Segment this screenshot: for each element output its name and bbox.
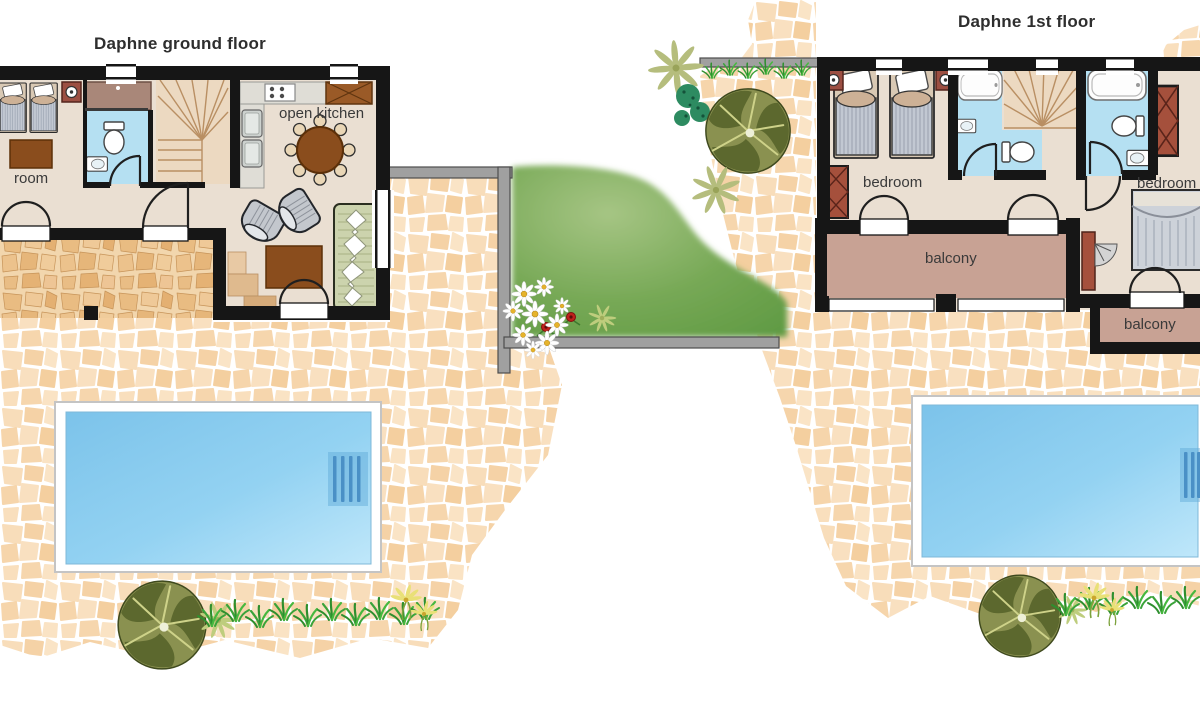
toilet-symbol [1112, 116, 1144, 136]
gf-toilet-symbol [104, 122, 124, 154]
sink-symbol [1127, 150, 1149, 165]
sink-symbol [956, 119, 976, 133]
ff-bathroom-2 [1086, 68, 1149, 176]
pool-ladder-icon [1180, 448, 1200, 502]
pool-water [922, 405, 1198, 557]
first-floor-title: Daphne 1st floor [958, 12, 1095, 32]
dining-table-symbol [285, 115, 355, 185]
stove-symbol [265, 84, 295, 101]
ground-floor-pool [55, 402, 381, 572]
label-bedroom-left: bedroom [863, 174, 922, 191]
desk-symbol [10, 140, 52, 168]
inner-courtyard-stone [0, 240, 214, 318]
shrub-icon [642, 34, 711, 103]
sofa-symbol [334, 204, 378, 310]
double-bed-symbol [1132, 190, 1200, 270]
label-balcony-main: balcony [925, 250, 977, 267]
gf-sink-symbol [87, 157, 108, 171]
first-floor-pool [912, 396, 1200, 566]
garden-wall-top [388, 167, 512, 178]
toilet-symbol [1002, 142, 1034, 162]
planter-symbol [1082, 232, 1095, 290]
floor-plan-image: Daphne ground floor Daphne 1st floor roo… [0, 0, 1200, 720]
nightstand-symbol [62, 82, 81, 102]
label-open-kitchen: open kitchen [279, 105, 364, 122]
label-balcony-small: balcony [1124, 316, 1176, 333]
pool-water [66, 412, 371, 564]
pool-ladder-icon [328, 452, 368, 506]
ground-floor-title: Daphne ground floor [94, 34, 266, 54]
bed-symbol [890, 68, 934, 158]
gf-stairs [156, 80, 230, 184]
floor-plan-scene [0, 0, 1200, 720]
label-room: room [14, 170, 48, 187]
first-floor-house [815, 53, 1200, 354]
label-bedroom-right: bedroom [1137, 175, 1196, 192]
